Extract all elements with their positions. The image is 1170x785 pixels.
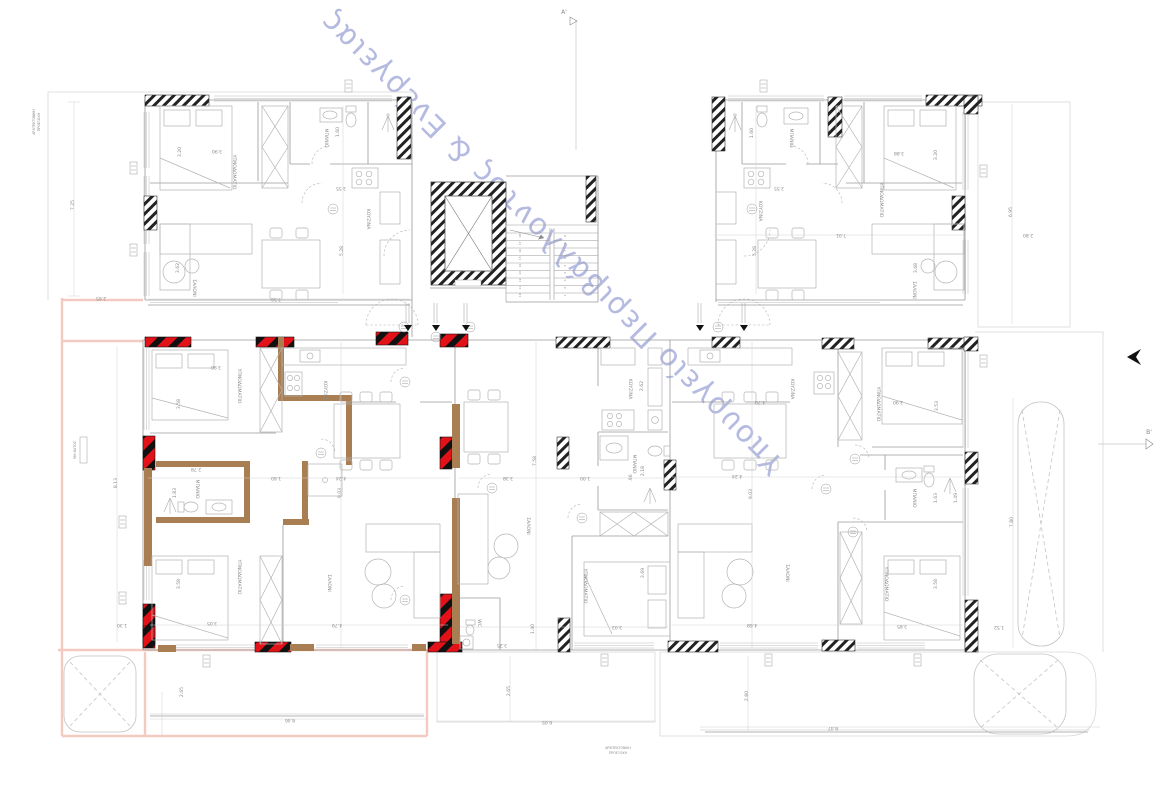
stair-number: 16 <box>518 249 522 253</box>
dim-label: 3.90 <box>893 399 903 405</box>
orientation-arrow-icon <box>1127 349 1141 365</box>
projection-outlines <box>48 92 1103 736</box>
note-arch-projection: ΠΡΟΕΞΟΧΗ <box>37 112 41 131</box>
dim-label: 6.95 <box>1008 207 1014 217</box>
note-arch-projection: ΑΡΧΙΤΕΚΤΟΝΙΚΗ <box>32 109 36 135</box>
dim-label: 3.62 <box>175 263 181 273</box>
dim-label: 1.30 <box>117 622 127 628</box>
floor-plan-drawing: Υπουργείο Περιβάλλοντος & Ενέργειας <box>0 0 1170 785</box>
stair-number: 7 <box>563 250 567 252</box>
stair-number: 8 <box>563 242 567 244</box>
dim-label: 3.20 <box>933 150 939 160</box>
wardrobe <box>260 556 282 644</box>
stair-number: 1 <box>563 294 567 296</box>
walls <box>143 100 1088 732</box>
dim-label: 3.58 <box>176 399 182 409</box>
dim-label: 2.18 <box>640 466 646 476</box>
bed <box>884 106 956 190</box>
dim-label: 1.60 <box>335 127 341 137</box>
bed <box>884 556 960 640</box>
bed <box>584 562 670 636</box>
dim-label: 5.28 <box>752 246 758 256</box>
dim-label: 3.58 <box>933 579 939 589</box>
room-label: ΜΠΑΝΙΟ <box>194 480 200 499</box>
dim-label: 3.20 <box>177 147 183 157</box>
dim-label: 2.62 <box>639 381 645 391</box>
section-markers <box>570 17 1153 449</box>
stair-number: 11 <box>518 286 522 290</box>
dim-label: 7.56 <box>271 296 281 302</box>
room-label: ΚΟΥΖΙΝΑ <box>322 381 328 402</box>
dim-label: 4.24 <box>336 475 346 481</box>
dim-label: 2.78 <box>191 466 201 472</box>
dim-label: 8.47 <box>828 725 838 731</box>
dim-label: 1.52 <box>994 624 1004 630</box>
room-label: ΥΠΝΟΔΩΜΑΤΙΟ <box>236 368 242 404</box>
dim-label: 3.90 <box>212 148 222 154</box>
note-arch-projection: ΠΡΟΕΞΟΧΗ <box>609 751 628 755</box>
dim-label: 3.69 <box>640 568 646 578</box>
room-label: WC <box>476 619 482 627</box>
section-marker-a: Α' <box>561 9 567 16</box>
dim-label: 8.13 <box>113 478 119 488</box>
dining-table <box>758 228 816 300</box>
dim-label: 9.03 <box>748 489 754 499</box>
room-label: ΥΠΝΟΔΩΜΑΤΙΟ <box>878 182 884 218</box>
dim-label: 3.68 <box>913 263 919 273</box>
dim-label: 4.68 <box>747 622 757 628</box>
dim-label: 9.03 <box>337 488 343 498</box>
room-label: ΚΟΥΖΙΝΑ <box>757 201 763 222</box>
dim-label: 2.80 <box>1023 232 1033 238</box>
dim-label: 3.53 <box>934 401 940 411</box>
stair-number: 15 <box>518 256 522 260</box>
stair-number: 6 <box>563 257 567 259</box>
dim-label: 6.05 <box>542 719 552 725</box>
dim-label: 7.25 <box>70 200 76 210</box>
room-label: ΥΠΝΟΔΩΜΑΤΙΟ <box>582 568 588 604</box>
room-label: ΚΟΥΖΙΝΑ <box>627 379 633 400</box>
wardrobe <box>838 352 862 440</box>
wardrobe <box>262 106 288 188</box>
bed <box>152 556 228 640</box>
section-marker-b: Β' <box>1146 429 1152 436</box>
room-label: ΣΑΛΟΝΙ <box>191 279 197 297</box>
room-label: ΜΠΑΝΙΟ <box>911 489 917 508</box>
bed <box>160 106 232 190</box>
dim-label: 3.03 <box>612 624 622 630</box>
dim-label: 4.79 <box>755 399 765 405</box>
section-arrow-b <box>1146 439 1153 449</box>
room-label: ΚΟΥΖΙΝΑ <box>365 209 371 230</box>
room-label: ΣΑΛΟΝΙ <box>784 564 790 582</box>
room-label: ΣΑΛΟΝΙ <box>911 281 917 299</box>
dim-label: 8.46 <box>285 717 295 723</box>
room-label: ΥΠΝΟΔΩΜΑΤΙΟ <box>231 154 237 190</box>
room-label: ΥΠΝΟΔΩΜΑΤΙΟ <box>883 566 889 602</box>
dim-label: 7.80 <box>1009 517 1015 527</box>
bed <box>882 348 962 424</box>
dim-label: 1.63 <box>933 493 939 503</box>
dim-label: 1.60 <box>749 128 755 138</box>
dim-label: 3.88 <box>894 150 904 156</box>
sofa <box>160 224 252 290</box>
room-label: ΣΑΛΟΝΙ <box>525 517 531 535</box>
room-label: ΜΠΑΝΙΟ <box>323 129 329 148</box>
dim-label: 3.55 <box>336 185 346 191</box>
room-label: ΥΠΝΟΔΩΜΑΤΙΟ <box>236 559 242 595</box>
dim-label: 1.83 <box>172 488 178 498</box>
dim-label: 4.79 <box>332 622 342 628</box>
room-label: ΚΟΥΖΙΝΑ <box>789 379 795 400</box>
dining-table <box>334 392 400 470</box>
dim-label: 3.90 <box>211 364 221 370</box>
dining-table <box>262 228 320 300</box>
dim-label: 3.38 <box>503 475 513 481</box>
dim-label: 3.25 <box>497 642 507 648</box>
stair-number: 2 <box>563 287 567 289</box>
stair-number: 17 <box>518 241 522 245</box>
note-non-walkable: ΜΗ ΒΑΤΟΣ <box>73 441 77 459</box>
stair-number: 18 <box>518 234 522 238</box>
dim-label: .96 <box>628 474 634 481</box>
dim-label: 3.85 <box>897 623 907 629</box>
door-swings <box>302 146 869 600</box>
dim-label: 3.58 <box>176 579 182 589</box>
dim-label: 2.65 <box>179 687 185 697</box>
dim-label: 3.55 <box>774 185 784 191</box>
tags <box>80 80 987 667</box>
dim-label: 1.60 <box>271 475 281 481</box>
sofa <box>872 224 964 290</box>
dimension-lines <box>68 102 1100 736</box>
dim-label: 4.24 <box>732 473 742 479</box>
dim-label: 1.49 <box>953 493 959 503</box>
dim-label: 2.65 <box>96 295 106 301</box>
wardrobe <box>600 512 668 536</box>
stair-number: 3 <box>563 279 567 281</box>
room-label: ΣΑΛΟΝΙ <box>326 574 332 592</box>
dim-label: 5.28 <box>339 246 345 256</box>
level-marker <box>404 303 748 331</box>
sofa <box>678 524 753 618</box>
stair-number: 14 <box>518 264 522 268</box>
stair-number: 4 <box>563 272 567 274</box>
dim-label: 1.40 <box>530 624 536 634</box>
note-arch-projection: ΑΡΧΙΤΕΚΤΟΝΙΚΗ <box>605 746 631 750</box>
dim-label: 3.05 <box>207 620 217 626</box>
dim-label: 1.00 <box>580 475 590 481</box>
sofa <box>458 494 518 584</box>
room-label: ΜΠΑΝΙΟ <box>631 455 637 474</box>
furniture <box>152 106 964 649</box>
room-label: ΥΠΝΟΔΩΜΑΤΙΟ <box>875 386 881 422</box>
stair-number: 5 <box>563 265 567 267</box>
stair-number: 12 <box>518 278 522 282</box>
watermark-text: Υπουργείο Περιβάλλοντος & Ενέργειας <box>312 2 792 482</box>
room-label: ΜΠΑΝΙΟ <box>788 129 794 148</box>
stair-number: 10 <box>518 293 522 297</box>
stair-number: 13 <box>518 271 522 275</box>
elevator-shaft <box>431 182 506 286</box>
dim-label: 2.80 <box>744 691 750 701</box>
dim-label: 2.65 <box>506 686 512 696</box>
dining-table <box>464 390 508 464</box>
floor-plan-page: Υπουργείο Περιβάλλοντος & Ενέργειας <box>0 0 1170 785</box>
dim-label: 7.01 <box>836 232 846 238</box>
dim-label: 7.58 <box>532 456 538 466</box>
wardrobe <box>840 532 862 624</box>
window-tag <box>80 80 987 667</box>
stair-number: 9 <box>563 235 567 237</box>
sofa <box>365 524 440 618</box>
bed <box>152 350 228 420</box>
